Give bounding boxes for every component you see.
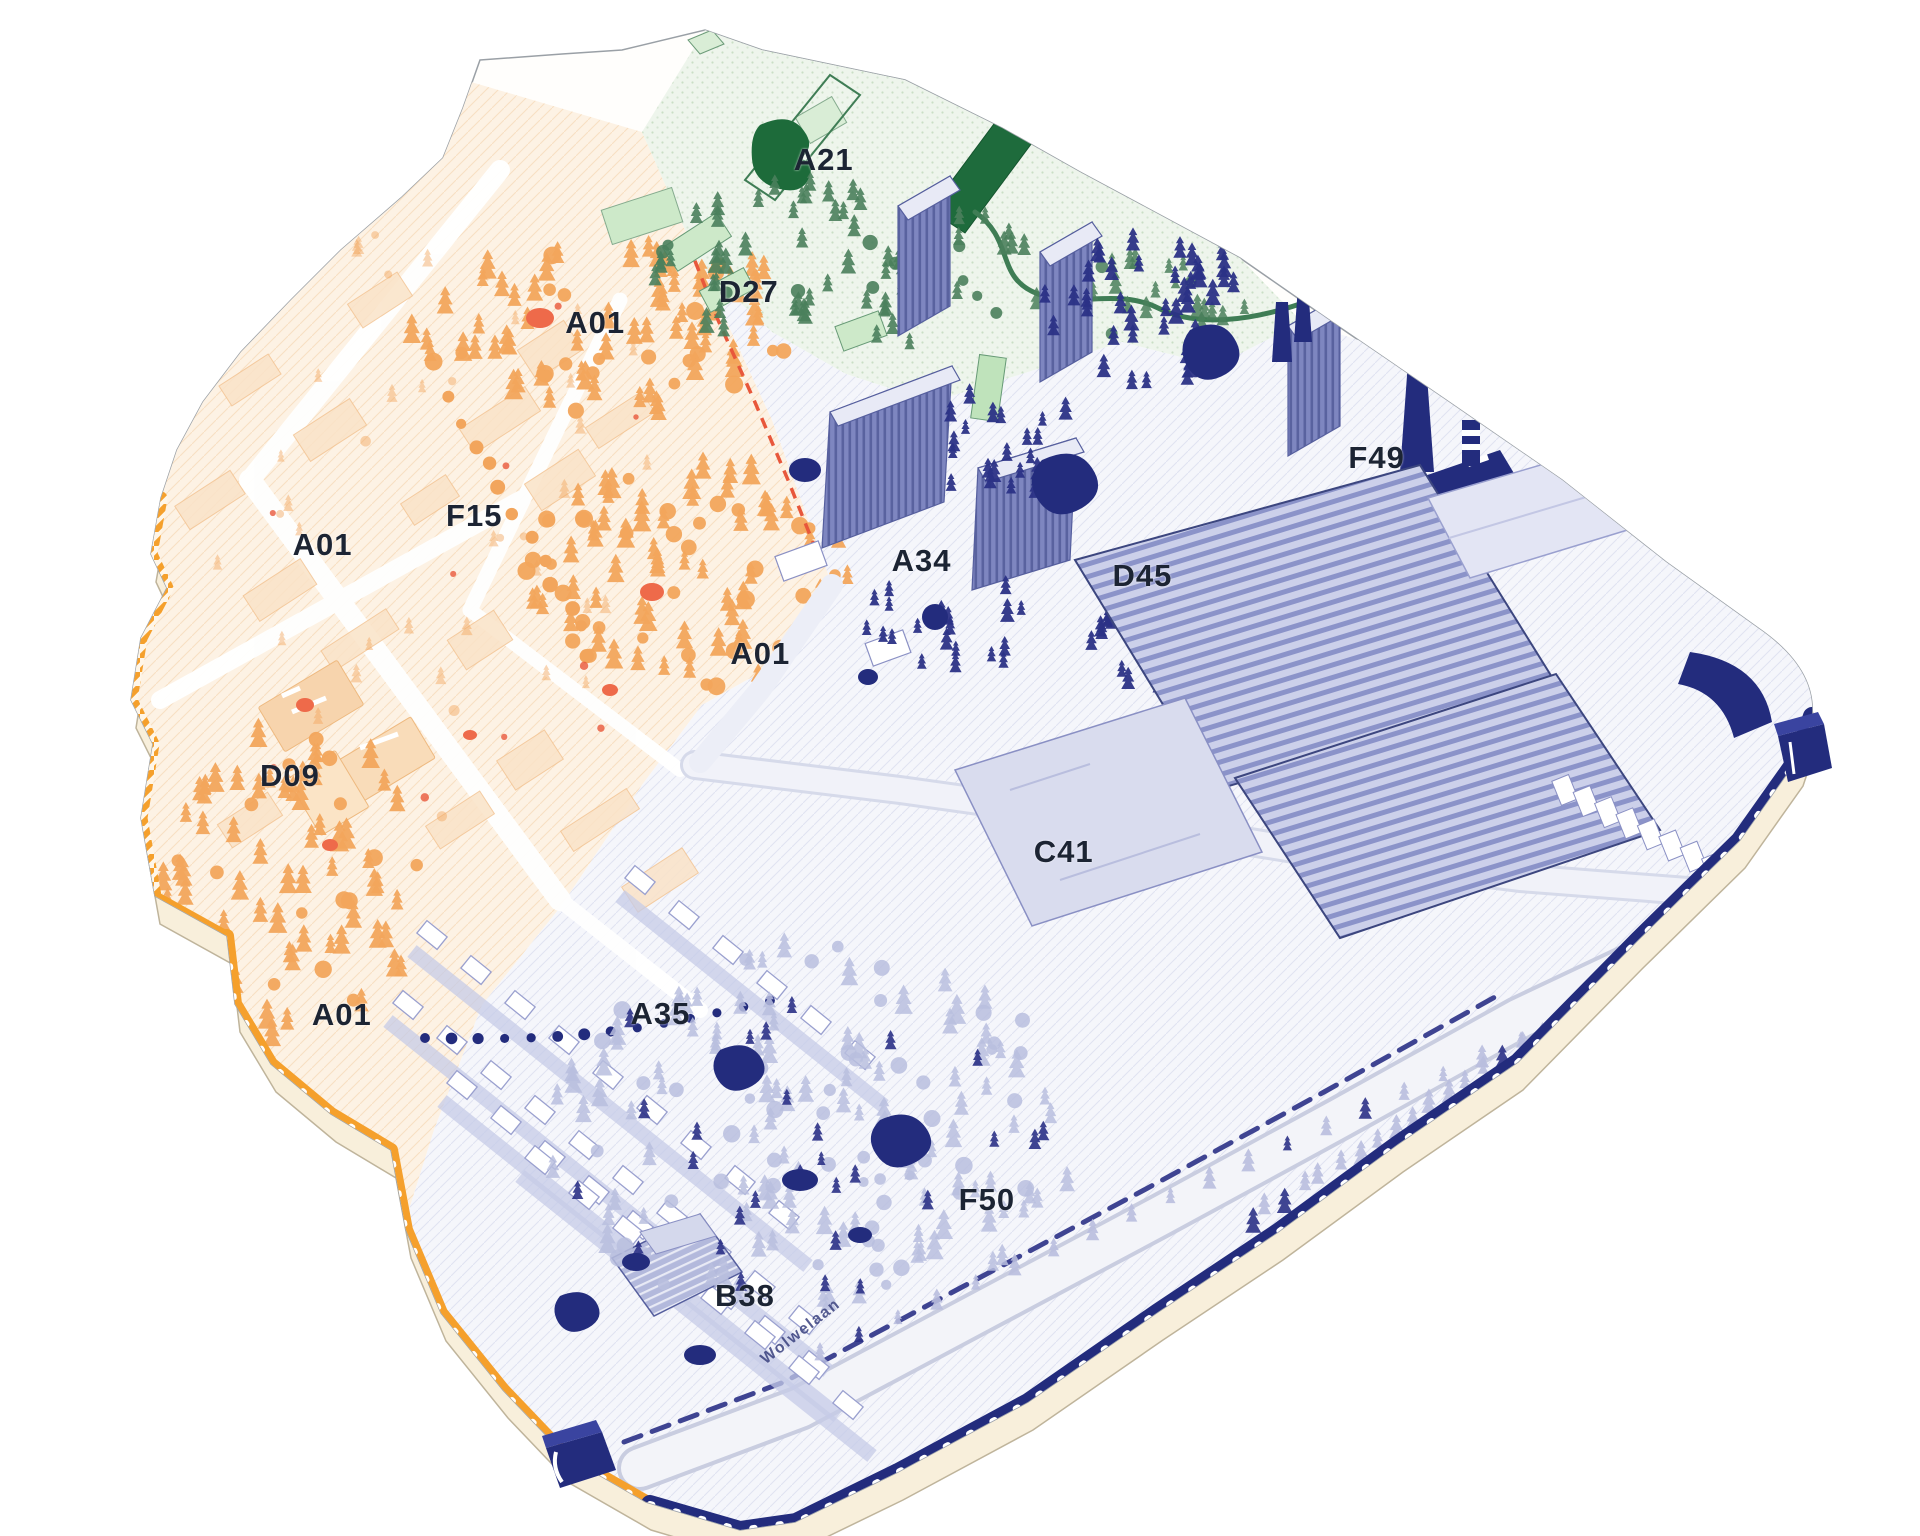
tree: [245, 798, 259, 812]
tree: [149, 934, 168, 964]
tree: [725, 375, 743, 393]
tree: [334, 797, 347, 810]
tree: [664, 1194, 678, 1208]
tree: [371, 231, 379, 239]
street-tree: [506, 508, 518, 520]
tree: [620, 526, 634, 540]
shrub-dot: [527, 1033, 536, 1042]
tree: [958, 275, 969, 286]
street-tree: [483, 456, 496, 469]
tree: [637, 632, 648, 643]
red-dot: [633, 414, 638, 419]
tree: [568, 403, 584, 419]
tree: [276, 510, 284, 518]
tree: [322, 751, 338, 767]
tree: [816, 1106, 830, 1120]
tree: [693, 517, 706, 530]
masterplan-page: A21D27A01F15A01A34F49D45A01D09C41A35A01F…: [0, 0, 1920, 1536]
tree: [874, 960, 890, 976]
tree: [315, 961, 332, 978]
tree: [766, 1101, 783, 1118]
tree: [767, 345, 779, 357]
tree: [1014, 1046, 1028, 1060]
tree: [990, 307, 1002, 319]
tree: [824, 1084, 836, 1096]
tree: [366, 849, 383, 866]
red-dot: [501, 734, 507, 740]
shrub-dot: [659, 1019, 668, 1028]
tree: [904, 1170, 914, 1180]
tree: [874, 994, 887, 1007]
shrub-dot: [552, 1031, 563, 1042]
red-dot: [270, 510, 276, 516]
tree: [496, 534, 504, 542]
shrub-dot: [712, 1008, 721, 1017]
tree: [916, 1075, 930, 1089]
tree: [517, 562, 535, 580]
street-tree: [490, 480, 505, 495]
street-tree: [526, 531, 539, 544]
tree: [666, 526, 682, 542]
tree: [791, 284, 805, 298]
shrub-dot: [446, 1033, 458, 1045]
tree: [953, 1186, 967, 1200]
street-tree: [576, 620, 587, 631]
shrub-dot: [578, 1028, 590, 1040]
tree: [804, 954, 818, 968]
street-tree: [539, 555, 551, 567]
tree: [955, 1157, 973, 1175]
red-dot: [450, 571, 456, 577]
tree: [972, 291, 982, 301]
tree: [881, 1280, 891, 1290]
tree: [681, 540, 697, 556]
tree: [543, 283, 556, 296]
tree: [720, 287, 732, 299]
tree: [986, 1044, 997, 1055]
tree: [669, 1082, 684, 1097]
tree: [347, 994, 360, 1007]
tree: [876, 1195, 891, 1210]
tree: [669, 378, 681, 390]
tree: [732, 503, 746, 517]
street-tree: [442, 391, 454, 403]
street-tree: [565, 601, 580, 616]
tree: [641, 349, 656, 364]
red-dot: [580, 662, 588, 670]
red-dot: [502, 462, 509, 469]
tree: [813, 1259, 824, 1270]
tree: [282, 758, 295, 771]
tree: [874, 1173, 886, 1185]
tree: [164, 955, 179, 979]
tree: [360, 436, 371, 447]
tree: [558, 288, 572, 302]
tree: [1017, 1180, 1034, 1197]
tree: [767, 1153, 782, 1168]
tree: [593, 621, 606, 634]
tree: [448, 377, 456, 385]
tree: [617, 1237, 634, 1254]
shrub-dot: [472, 1033, 483, 1044]
tree: [869, 1262, 883, 1276]
tree: [437, 811, 447, 821]
tree: [976, 1005, 992, 1021]
tree: [449, 705, 460, 716]
tree: [296, 907, 307, 918]
tree: [594, 1033, 611, 1050]
tree: [636, 1076, 650, 1090]
tree: [891, 1057, 908, 1074]
tree: [565, 633, 580, 648]
tree: [866, 281, 879, 294]
tree: [559, 357, 572, 370]
red-dot: [597, 724, 604, 731]
tree: [1015, 1013, 1030, 1028]
tree: [924, 1110, 941, 1127]
shrub-dot: [500, 1034, 509, 1043]
tree: [832, 941, 844, 953]
street-tree: [456, 419, 466, 429]
tree: [203, 1004, 222, 1035]
tree: [659, 503, 676, 520]
tree: [713, 1173, 729, 1189]
tree: [542, 514, 555, 527]
tree: [667, 586, 680, 599]
tree: [309, 732, 324, 747]
tree: [455, 347, 467, 359]
tree: [683, 354, 696, 367]
red-dot: [421, 793, 430, 802]
tree: [857, 1151, 870, 1164]
tree: [172, 854, 185, 867]
masterplan-map: [0, 0, 1920, 1536]
tree: [893, 1260, 910, 1277]
tree: [384, 271, 392, 279]
street-tree: [580, 649, 594, 663]
tree: [737, 590, 755, 608]
tree: [658, 1278, 670, 1290]
tree: [575, 510, 593, 528]
tree: [708, 677, 726, 695]
tree: [1007, 1093, 1022, 1108]
tree: [710, 496, 726, 512]
street-tree: [470, 440, 484, 454]
tree: [135, 889, 152, 917]
tree: [410, 859, 422, 871]
tree: [723, 1125, 740, 1142]
red-dot: [555, 303, 562, 310]
tree: [183, 952, 197, 974]
tree: [591, 1144, 604, 1157]
tree: [268, 978, 281, 991]
tree: [308, 779, 316, 787]
tree: [863, 235, 878, 250]
tree: [745, 1093, 756, 1104]
tree: [210, 866, 224, 880]
red-dot: [270, 764, 276, 770]
shrub-dot: [420, 1033, 430, 1043]
tree: [747, 561, 764, 578]
tree: [623, 473, 635, 485]
street-tree: [542, 577, 558, 593]
tree: [686, 302, 704, 320]
